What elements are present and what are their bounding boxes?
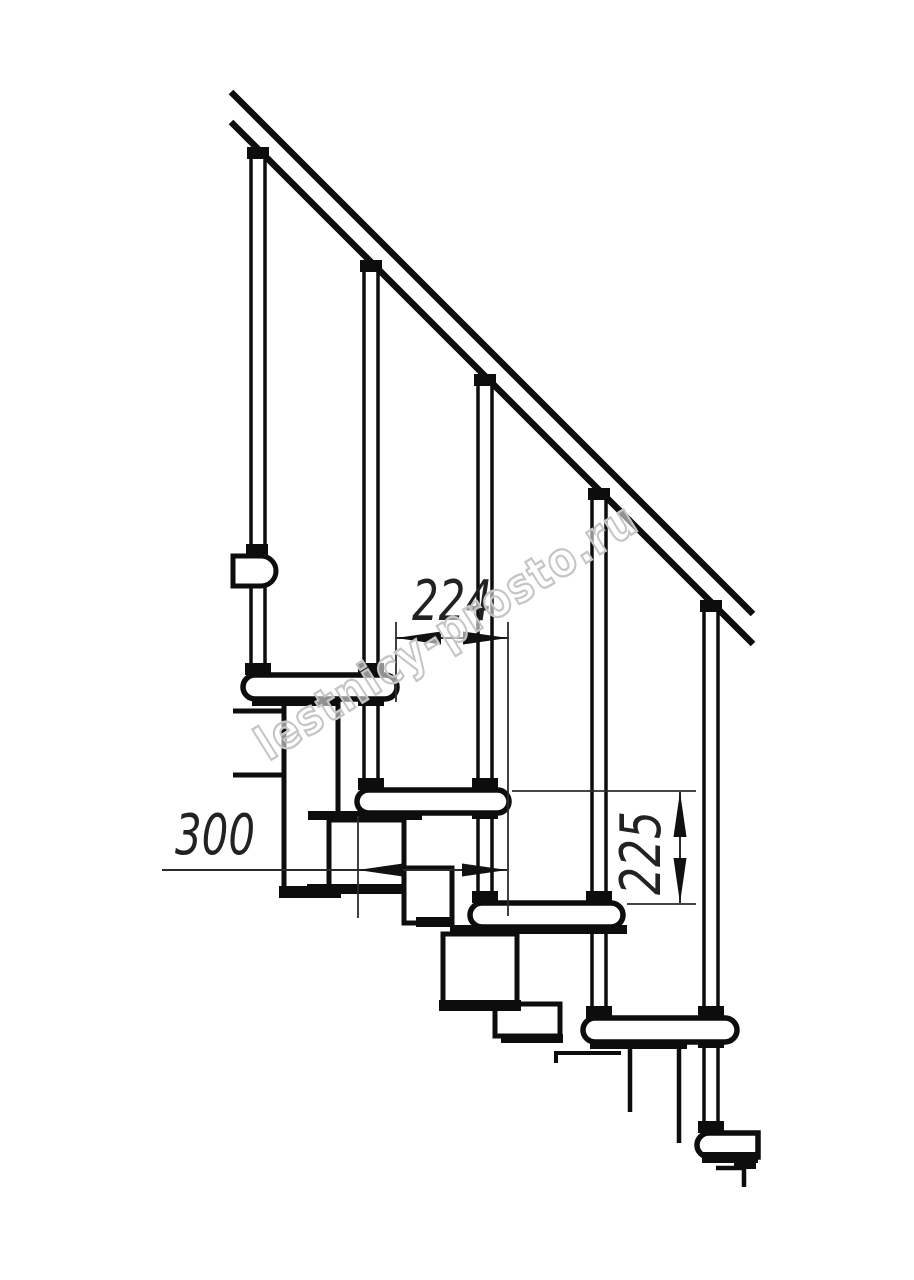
baluster-1 — [251, 151, 265, 677]
dimension-225: 225 — [512, 791, 696, 904]
support-modules — [233, 703, 744, 1187]
broken-line-under-tread-5 — [716, 1168, 744, 1187]
base-plate-link-3-4 — [501, 1034, 563, 1043]
collar-b5-tread4 — [698, 1006, 724, 1018]
broken-line-under-tread-4a — [556, 1053, 621, 1063]
wall-bracket — [233, 544, 276, 586]
module-under-tread-3 — [443, 934, 517, 1004]
collar-b4-tread4 — [586, 1006, 612, 1018]
underplate-tread-4 — [590, 1041, 687, 1049]
base-plate-link-2-3 — [416, 917, 452, 927]
underplate-tread-2 — [308, 811, 422, 820]
rail-collar-b1 — [247, 147, 269, 159]
staircase-drawing-canvas: 224 300 225 lestnicy-prosto.ru — [0, 0, 914, 1280]
broken-off-structure-lines — [556, 1043, 744, 1187]
tread-3 — [470, 903, 623, 927]
wall-bracket-body — [233, 556, 276, 586]
underplate-tread-5-notch — [734, 1161, 756, 1169]
dim225-label: 225 — [609, 811, 674, 895]
collar-b3-tread2 — [472, 778, 498, 790]
strut-foot-4 — [586, 926, 612, 933]
dim225-arrow-down — [674, 858, 687, 903]
module-under-tread-2 — [329, 820, 404, 889]
collar-b5-tread5 — [698, 1121, 724, 1133]
rail-collar-b3 — [474, 374, 496, 386]
watermark-text: lestnicy-prosto.ru — [246, 492, 648, 772]
collar-b1-tread1 — [245, 663, 271, 675]
rail-collar-b4 — [588, 488, 610, 500]
staircase-side-elevation: 224 300 225 lestnicy-prosto.ru — [0, 0, 914, 1280]
tread-4 — [583, 1018, 737, 1042]
dim300-arrow-right — [462, 864, 507, 877]
rail-collar-b5 — [700, 600, 722, 612]
rail-collar-b2 — [360, 260, 382, 272]
dim225-arrow-up — [674, 792, 687, 837]
base-plate-module-3 — [439, 1000, 521, 1011]
tread-2 — [357, 790, 509, 813]
baluster-5 — [704, 604, 718, 1135]
module-link-2-3 — [404, 868, 452, 923]
collar-b2-tread2 — [358, 778, 384, 790]
base-plate-module-2 — [307, 884, 404, 894]
collar-b3-tread3 — [472, 891, 498, 903]
strut-foot-5 — [698, 1041, 724, 1048]
wall-bracket-collar — [246, 544, 268, 555]
dim300-label: 300 — [175, 803, 255, 868]
strut-foot-3 — [472, 812, 498, 819]
